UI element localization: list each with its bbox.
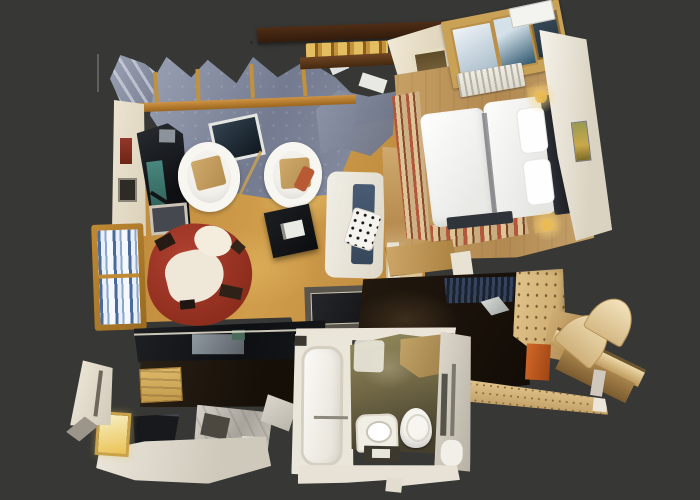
- wall-fragment: [385, 477, 402, 493]
- bathroom-left-wall: [291, 334, 354, 481]
- towel: [440, 440, 463, 467]
- shower-glass: [353, 339, 384, 372]
- bathroom-bottom-wall: [298, 463, 460, 488]
- bathtub-divider: [314, 416, 348, 419]
- toilet-seat: [406, 414, 430, 442]
- corner-shadow: [295, 336, 307, 346]
- mirror-strip: [440, 374, 448, 436]
- shower-tray-mat: [372, 449, 390, 458]
- bathroom-right-wall: [434, 332, 474, 475]
- shower-tray: [364, 446, 400, 463]
- washbasin-bowl: [366, 420, 393, 443]
- bathroom-group: [0, 0, 700, 500]
- bathtub: [300, 346, 343, 466]
- toilet: [400, 408, 432, 448]
- dollhouse-3d-scan: [0, 0, 700, 500]
- mirror-strip: [450, 364, 456, 436]
